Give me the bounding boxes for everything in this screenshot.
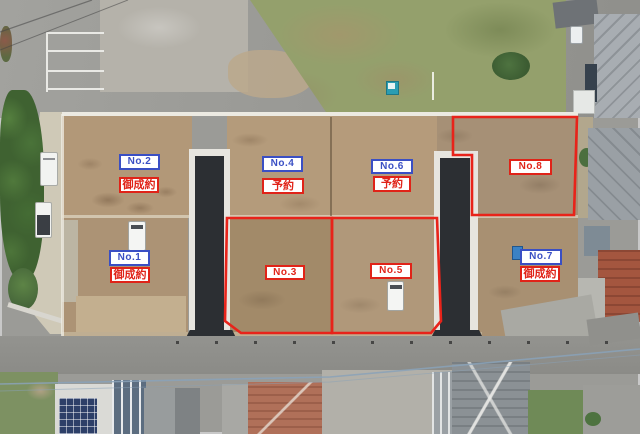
lot-no7-label: No.7 <box>520 249 562 265</box>
lot-no2-label: No.2 <box>119 154 160 170</box>
power-line <box>0 349 640 384</box>
lot-no5-label: No.5 <box>370 263 412 279</box>
lot-no6-label: No.6 <box>371 159 413 174</box>
lot-no8-label: No.8 <box>509 159 552 175</box>
lot-no7-status: 御成約 <box>520 266 560 282</box>
lot-no1-status: 御成約 <box>110 267 150 283</box>
power-line <box>0 0 92 32</box>
aerial-photo: No.1 御成約 No.2 御成約 No.3 No.4 予約 No.5 No.6… <box>0 0 640 434</box>
lot-no3-label: No.3 <box>265 265 305 280</box>
power-line <box>0 355 640 391</box>
lot-no1-label: No.1 <box>109 250 150 266</box>
lot-no2-status: 御成約 <box>119 177 159 193</box>
lot-no4-status: 予約 <box>262 178 304 194</box>
lot-no6-status: 予約 <box>373 176 411 192</box>
lot-no4-label: No.4 <box>262 156 303 172</box>
annotation-overlay <box>0 0 640 434</box>
